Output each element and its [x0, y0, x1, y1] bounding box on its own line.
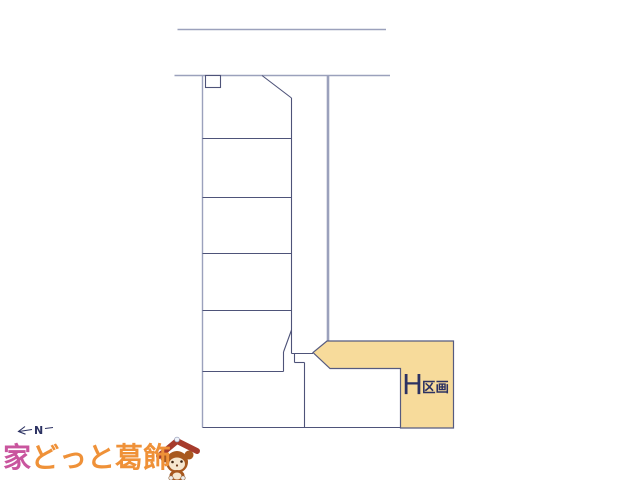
mascot-eye-right — [180, 460, 183, 463]
mascot-roof-ornament — [175, 437, 180, 442]
plot-h-label-sub: 区画 — [422, 380, 449, 396]
mascot-belly — [173, 473, 182, 480]
logo-text-primary: 家 — [3, 441, 31, 474]
mascot-eye-left — [171, 461, 174, 464]
north-indicator: N — [19, 424, 54, 437]
north-label: N — [34, 424, 43, 437]
utility-notch — [206, 76, 221, 88]
plot-notch-diagonal — [284, 330, 292, 352]
company-logo: 家どっと葛飾 — [3, 440, 171, 476]
mascot-foot-left — [169, 476, 173, 480]
site-plan-drawing: H 区画 N — [0, 0, 640, 480]
mascot-face — [169, 458, 185, 471]
mascot-nose — [176, 464, 178, 466]
mascot-foot-right — [181, 476, 185, 480]
plot-map-image: H 区画 N 家どっと葛飾 — [0, 0, 640, 480]
plot-corner-diagonal — [262, 76, 292, 99]
logo-text-secondary: どっと葛飾 — [31, 441, 171, 474]
plot-h-label-main: H — [402, 368, 423, 401]
